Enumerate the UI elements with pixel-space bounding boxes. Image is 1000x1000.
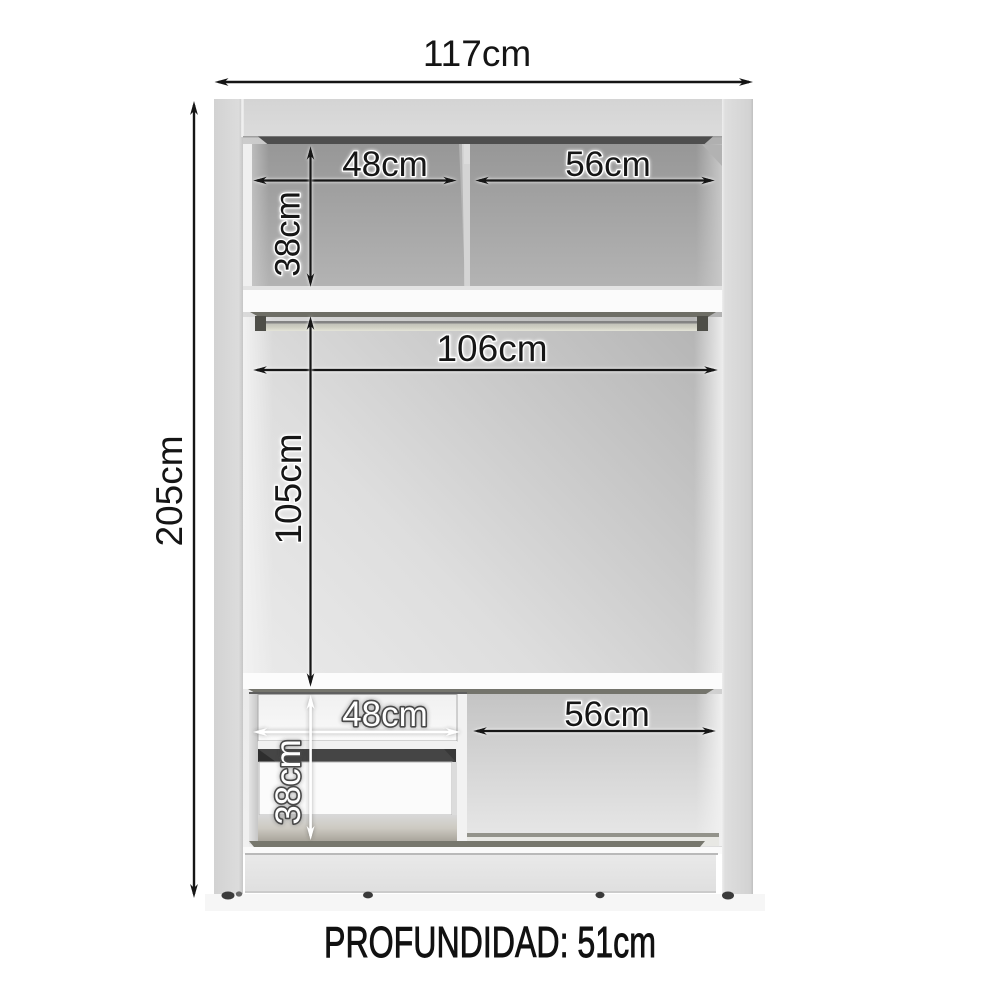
svg-text:48cm: 48cm [342,145,428,184]
svg-text:PROFUNDIDAD: 51cm: PROFUNDIDAD: 51cm [324,918,656,967]
svg-text:56cm: 56cm [564,695,650,734]
svg-text:105cm: 105cm [268,433,309,544]
svg-text:38cm: 38cm [269,191,308,277]
svg-text:205cm: 205cm [149,435,190,546]
svg-text:106cm: 106cm [436,328,547,369]
svg-text:117cm: 117cm [423,33,531,74]
svg-text:56cm: 56cm [565,145,651,184]
svg-text:38cm: 38cm [269,739,308,825]
svg-text:48cm: 48cm [342,695,428,734]
